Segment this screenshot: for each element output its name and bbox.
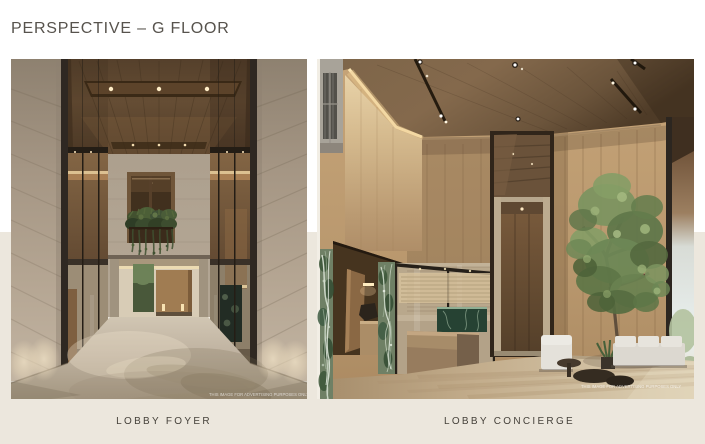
svg-text:THIS IMAGE FOR ADVERTISING PUR: THIS IMAGE FOR ADVERTISING PURPOSES ONLY — [581, 384, 681, 389]
svg-text:THIS IMAGE FOR ADVERTISING PUR: THIS IMAGE FOR ADVERTISING PURPOSES ONLY — [209, 392, 307, 397]
